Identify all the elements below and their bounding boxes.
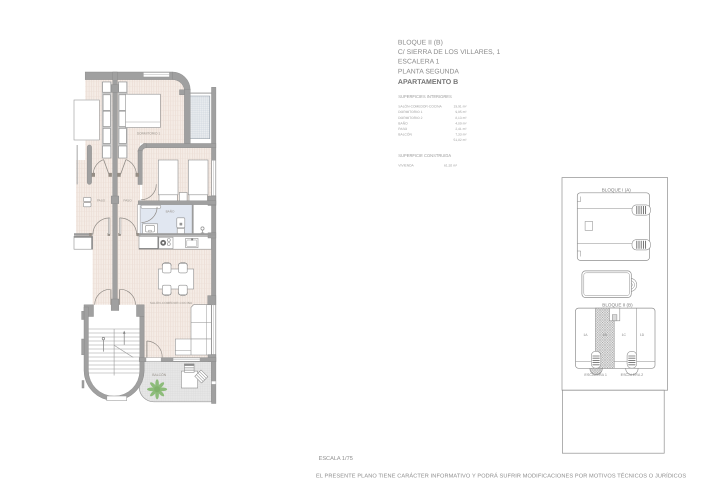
svg-text:2,41 m²: 2,41 m²: [455, 127, 467, 131]
svg-text:1B: 1B: [603, 333, 608, 337]
svg-text:EL PRESENTE PLANO TIENE CARÁCT: EL PRESENTE PLANO TIENE CARÁCTER INFORMA…: [316, 473, 686, 480]
svg-text:1D: 1D: [640, 333, 645, 337]
svg-text:SUPERFICIES INTERIORES: SUPERFICIES INTERIORES: [398, 94, 452, 99]
svg-text:1A: 1A: [583, 333, 588, 337]
svg-text:DORMITORIO 1: DORMITORIO 1: [137, 132, 161, 136]
svg-text:PLANTA SEGUNDA: PLANTA SEGUNDA: [398, 68, 460, 75]
svg-text:BLOQUE II (B): BLOQUE II (B): [602, 303, 633, 308]
svg-text:PASO: PASO: [97, 198, 106, 202]
svg-text:BLOQUE II (B): BLOQUE II (B): [398, 39, 443, 46]
svg-text:PASO: PASO: [398, 127, 407, 131]
svg-text:PASO: PASO: [123, 198, 132, 202]
svg-text:ESCALA 1/75: ESCALA 1/75: [319, 455, 353, 462]
svg-text:BAÑO: BAÑO: [398, 121, 408, 125]
svg-text:61,92 m²: 61,92 m²: [444, 163, 458, 167]
svg-text:DORMITORIO 2: DORMITORIO 2: [398, 116, 422, 120]
svg-text:BLOQUE I (A): BLOQUE I (A): [602, 187, 632, 192]
svg-text:BALCÓN: BALCÓN: [152, 373, 166, 377]
svg-text:ESCALERA 1: ESCALERA 1: [584, 373, 607, 377]
svg-text:ESCALERA 2: ESCALERA 2: [621, 373, 644, 377]
svg-text:BAÑO: BAÑO: [166, 210, 175, 214]
svg-text:C/ SIERRA DE LOS VILLARES, 1: C/ SIERRA DE LOS VILLARES, 1: [398, 49, 501, 56]
svg-text:51,82 m²: 51,82 m²: [453, 138, 467, 142]
svg-text:SUPERFICIE CONSTRUIDA: SUPERFICIE CONSTRUIDA: [398, 153, 451, 158]
svg-text:1C: 1C: [622, 333, 627, 337]
svg-text:8,13 m²: 8,13 m²: [455, 116, 467, 120]
svg-text:SALÓN-COMEDOR-COCINA: SALÓN-COMEDOR-COCINA: [150, 301, 193, 305]
svg-text:19,91 m²: 19,91 m²: [453, 105, 467, 109]
svg-text:4,09 m²: 4,09 m²: [455, 121, 467, 125]
svg-text:APARTAMENTO B: APARTAMENTO B: [398, 79, 458, 86]
svg-text:DORMITORIO 1: DORMITORIO 1: [398, 110, 422, 114]
svg-text:9,95 m²: 9,95 m²: [455, 110, 467, 114]
svg-text:ESCALERA 1: ESCALERA 1: [398, 59, 440, 66]
svg-text:SALÓN-COMEDOR-COCINA: SALÓN-COMEDOR-COCINA: [398, 105, 442, 109]
svg-text:7,33 m²: 7,33 m²: [455, 133, 467, 137]
svg-text:BALCÓN: BALCÓN: [398, 133, 412, 137]
svg-text:VIVIENDA: VIVIENDA: [398, 163, 414, 167]
